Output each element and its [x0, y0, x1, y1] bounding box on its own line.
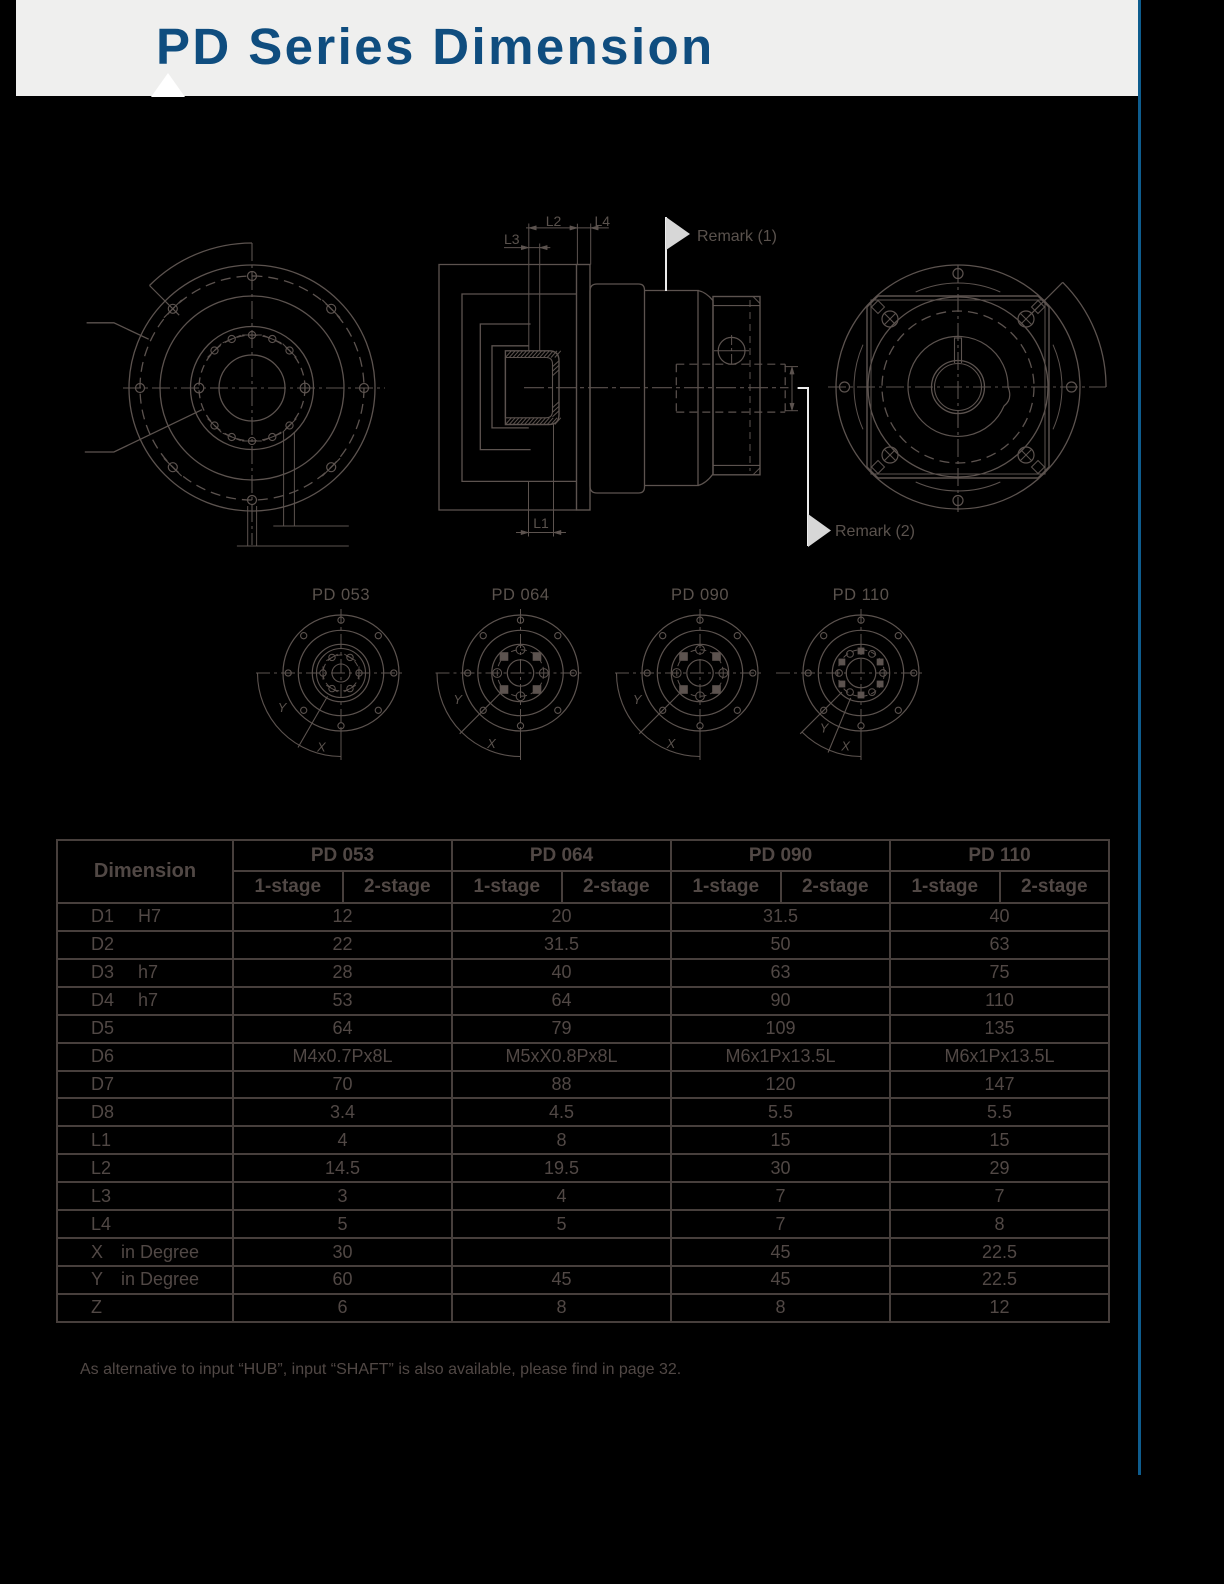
svg-text:X: X [840, 738, 851, 753]
svg-text:Remark (1): Remark (1) [697, 228, 777, 245]
svg-text:X: X [486, 736, 497, 751]
svg-text:PD 110: PD 110 [833, 586, 890, 604]
svg-text:X: X [666, 736, 677, 751]
svg-text:X: X [316, 739, 327, 754]
svg-text:Remark (2): Remark (2) [835, 523, 915, 540]
svg-text:Y: Y [453, 692, 463, 707]
svg-text:Y: Y [820, 721, 830, 736]
svg-text:L4: L4 [595, 213, 611, 229]
svg-text:L2: L2 [546, 213, 562, 229]
svg-text:Y: Y [278, 700, 288, 715]
svg-text:PD 053: PD 053 [312, 586, 370, 604]
svg-text:L1: L1 [533, 515, 549, 531]
svg-text:Y: Y [633, 692, 643, 707]
svg-text:L3: L3 [504, 231, 520, 247]
svg-text:PD 064: PD 064 [491, 586, 549, 604]
svg-text:PD 090: PD 090 [671, 586, 729, 604]
